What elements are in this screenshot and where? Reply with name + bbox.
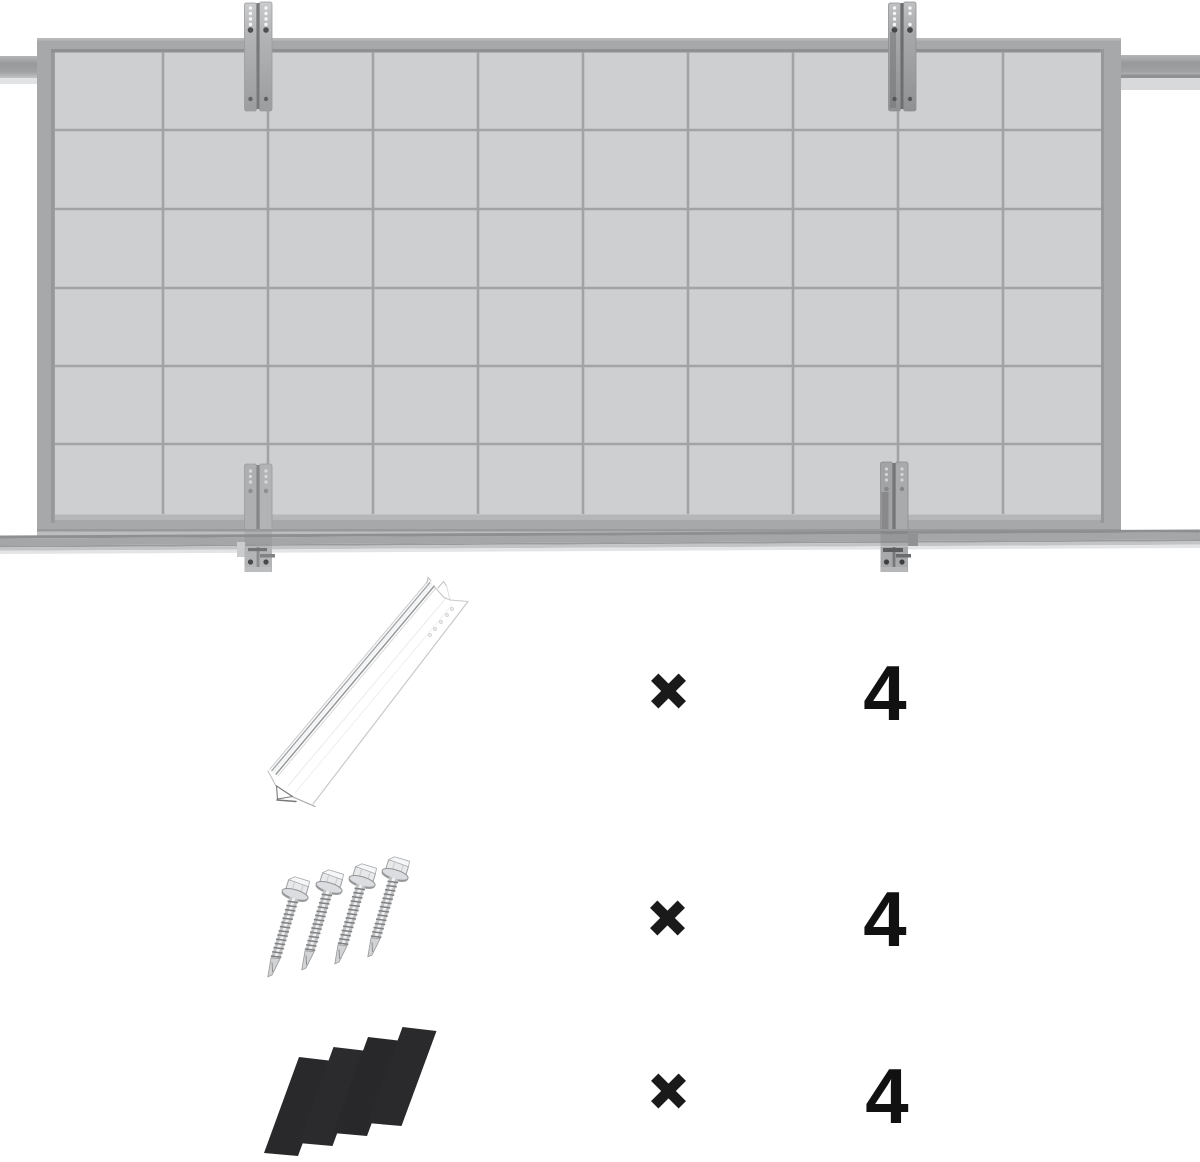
svg-text:4: 4 [863, 649, 906, 737]
svg-text:4: 4 [865, 1052, 908, 1140]
svg-text:4: 4 [863, 875, 906, 963]
